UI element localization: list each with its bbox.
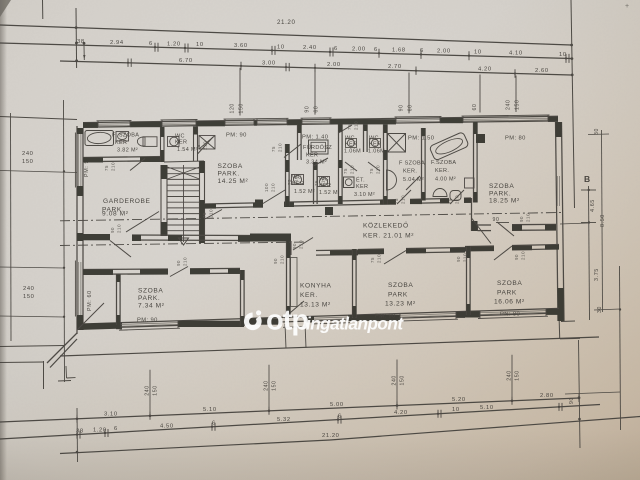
- svg-text:SZOBA: SZOBA: [497, 280, 522, 287]
- svg-text:10: 10: [474, 50, 482, 56]
- svg-text:otp: otp: [266, 305, 308, 337]
- svg-text:3.75: 3.75: [594, 268, 600, 281]
- svg-text:KER: KER: [175, 140, 187, 146]
- svg-text:90: 90: [273, 258, 278, 264]
- svg-text:KER: KER: [369, 142, 381, 148]
- svg-text:75: 75: [369, 168, 374, 174]
- svg-text:2.40: 2.40: [303, 45, 317, 51]
- svg-text:210: 210: [271, 183, 276, 192]
- svg-text:4.50: 4.50: [160, 424, 174, 430]
- svg-text:100: 100: [264, 183, 269, 192]
- svg-text:2.60: 2.60: [535, 68, 549, 74]
- svg-text:ÉT.: ÉT.: [356, 177, 365, 184]
- svg-text:PARK.: PARK.: [218, 171, 240, 178]
- svg-text:4.20: 4.20: [394, 410, 408, 416]
- svg-text:6: 6: [114, 426, 118, 432]
- svg-text:5.32: 5.32: [277, 417, 291, 423]
- svg-text:210: 210: [354, 121, 359, 130]
- svg-text:210: 210: [280, 255, 285, 264]
- svg-text:WC: WC: [292, 175, 302, 181]
- svg-text:21.20: 21.20: [322, 433, 340, 439]
- svg-text:PM: 90: PM: 90: [137, 318, 158, 324]
- svg-text:75: 75: [394, 198, 399, 204]
- svg-text:1.06M: 1.06M: [344, 149, 361, 155]
- svg-text:75: 75: [104, 165, 109, 171]
- svg-text:PM: 90: PM: 90: [226, 133, 247, 139]
- svg-text:10: 10: [452, 407, 460, 413]
- svg-text:2.94: 2.94: [110, 40, 124, 46]
- svg-text:6: 6: [374, 47, 378, 53]
- svg-text:KER.: KER.: [403, 169, 417, 175]
- svg-text:KER: KER: [356, 184, 368, 190]
- svg-text:210: 210: [377, 254, 382, 263]
- svg-text:PARK: PARK: [388, 292, 408, 299]
- svg-text:210: 210: [203, 141, 208, 150]
- svg-text:PM: 60: PM: 60: [87, 290, 93, 311]
- svg-text:150: 150: [153, 385, 159, 395]
- svg-text:5.04 M²: 5.04 M²: [403, 177, 424, 183]
- svg-text:210: 210: [526, 213, 531, 222]
- svg-text:75: 75: [202, 212, 207, 218]
- svg-text:B: B: [584, 174, 591, 184]
- svg-text:PARK.: PARK.: [138, 295, 160, 302]
- svg-text:3.10 M²: 3.10 M²: [354, 192, 375, 198]
- svg-text:1.06M: 1.06M: [368, 149, 385, 155]
- svg-text:21.20: 21.20: [277, 19, 295, 26]
- svg-text:60: 60: [408, 104, 414, 111]
- svg-text:1.54 M²: 1.54 M²: [177, 147, 198, 153]
- svg-text:KER.: KER.: [300, 292, 318, 299]
- svg-text:150: 150: [515, 370, 521, 380]
- svg-text:90: 90: [176, 260, 181, 266]
- svg-text:210: 210: [209, 209, 214, 218]
- svg-text:5.20: 5.20: [452, 397, 466, 403]
- svg-text:1.20: 1.20: [167, 41, 181, 47]
- svg-text:210: 210: [299, 240, 304, 249]
- svg-text:90: 90: [456, 256, 461, 262]
- svg-text:2.00: 2.00: [327, 62, 341, 68]
- svg-text:1.68: 1.68: [392, 47, 406, 53]
- svg-text:90: 90: [292, 243, 297, 249]
- svg-text:GARDEROBE: GARDEROBE: [103, 198, 151, 205]
- svg-text:240: 240: [263, 380, 269, 390]
- svg-text:KER: KER: [319, 183, 331, 189]
- svg-text:6.70: 6.70: [179, 58, 193, 64]
- svg-text:5.10: 5.10: [203, 407, 217, 413]
- svg-text:75: 75: [448, 198, 453, 204]
- svg-text:3.10: 3.10: [104, 411, 118, 417]
- svg-text:210: 210: [455, 195, 460, 204]
- svg-text:8.50: 8.50: [600, 214, 606, 227]
- svg-text:KER: KER: [306, 153, 318, 159]
- svg-text:SZOBA: SZOBA: [489, 183, 514, 190]
- svg-text:F.SZOBA: F.SZOBA: [431, 160, 456, 166]
- svg-text:240: 240: [507, 370, 513, 380]
- svg-text:3.82 M²: 3.82 M²: [117, 148, 138, 154]
- svg-text:210: 210: [463, 253, 468, 262]
- svg-text:KER: KER: [115, 140, 127, 146]
- svg-text:PM: 1.50: PM: 1.50: [408, 136, 434, 142]
- svg-text:75: 75: [343, 168, 348, 174]
- svg-text:SZOBA: SZOBA: [388, 282, 413, 289]
- svg-text:13.23 M²: 13.23 M²: [385, 301, 416, 308]
- svg-text:5.00: 5.00: [330, 402, 344, 408]
- svg-text:F SZOBA: F SZOBA: [399, 161, 425, 167]
- svg-text:18.25 M²: 18.25 M²: [489, 198, 520, 205]
- svg-text:PN: 80: PN: 80: [500, 312, 520, 318]
- svg-text:150: 150: [238, 103, 244, 113]
- svg-text:9.08 M²: 9.08 M²: [102, 211, 129, 218]
- svg-text:4.65: 4.65: [590, 199, 596, 212]
- svg-text:16.06 M²: 16.06 M²: [494, 299, 525, 306]
- svg-text:75: 75: [271, 146, 276, 152]
- svg-text:75: 75: [347, 124, 352, 130]
- svg-text:90: 90: [110, 227, 115, 233]
- svg-text:4.10: 4.10: [509, 51, 523, 57]
- svg-text:210: 210: [376, 165, 381, 174]
- svg-text:7.34 M²: 7.34 M²: [138, 303, 165, 310]
- svg-text:1.52 M: 1.52 M: [319, 190, 338, 196]
- svg-text:KER. 21.01 M²: KER. 21.01 M²: [363, 233, 414, 240]
- svg-text:10: 10: [196, 42, 204, 48]
- svg-text:KÖZLEKEDŐ: KÖZLEKEDŐ: [363, 221, 409, 230]
- svg-text:38: 38: [77, 39, 85, 45]
- svg-text:3.34 M²: 3.34 M²: [306, 160, 327, 166]
- svg-text:PARK.: PARK.: [489, 191, 511, 198]
- svg-text:10: 10: [559, 52, 567, 58]
- svg-text:F. SZOBA: F. SZOBA: [112, 133, 139, 139]
- svg-text:90: 90: [305, 106, 311, 113]
- svg-text:150: 150: [271, 380, 277, 390]
- svg-text:4.20: 4.20: [478, 66, 492, 72]
- svg-text:120: 120: [229, 103, 235, 113]
- svg-text:210: 210: [278, 143, 283, 152]
- svg-text:SZOBA: SZOBA: [218, 163, 243, 170]
- svg-text:+: +: [625, 3, 630, 10]
- svg-text:KONYHA: KONYHA: [300, 283, 331, 290]
- svg-text:2.00: 2.00: [437, 49, 451, 55]
- svg-text:6: 6: [334, 46, 338, 52]
- svg-text:210: 210: [117, 224, 122, 233]
- svg-text:240: 240: [22, 151, 33, 157]
- svg-text:5.10: 5.10: [480, 405, 494, 411]
- svg-text:FÜRDŐSZ: FÜRDŐSZ: [303, 144, 332, 151]
- svg-text:3.00: 3.00: [262, 60, 276, 66]
- svg-text:2.00: 2.00: [352, 46, 366, 52]
- svg-text:ingatlanpont: ingatlanpont: [306, 314, 404, 334]
- svg-text:75: 75: [370, 257, 375, 263]
- svg-text:10: 10: [277, 44, 285, 50]
- svg-text:2.80: 2.80: [540, 393, 554, 399]
- svg-text:PM: 80: PM: 80: [505, 136, 526, 142]
- svg-text:3.60: 3.60: [234, 43, 248, 49]
- svg-text:150: 150: [22, 159, 33, 165]
- svg-text:WC: WC: [319, 177, 329, 183]
- svg-text:SZOBA: SZOBA: [138, 288, 163, 295]
- svg-text:6: 6: [420, 48, 424, 54]
- svg-text:210: 210: [521, 251, 526, 260]
- svg-text:150: 150: [23, 294, 34, 300]
- svg-text:240: 240: [145, 385, 151, 395]
- svg-text:14.25 M²: 14.25 M²: [218, 178, 249, 185]
- svg-text:240: 240: [391, 375, 397, 385]
- svg-text:90: 90: [399, 104, 405, 111]
- svg-text:210: 210: [183, 257, 188, 266]
- svg-text:PM: 1.40: PM: 1.40: [302, 135, 328, 141]
- svg-text:210: 210: [401, 195, 406, 204]
- svg-text:2.70: 2.70: [388, 64, 402, 70]
- svg-text:210: 210: [111, 162, 116, 171]
- svg-text:240: 240: [505, 100, 511, 110]
- svg-text:6: 6: [149, 41, 153, 47]
- svg-text:KER: KER: [345, 142, 357, 148]
- svg-text:4.00 M²: 4.00 M²: [435, 177, 456, 183]
- svg-text:150: 150: [514, 100, 520, 110]
- svg-text:240: 240: [23, 286, 34, 292]
- svg-text:60: 60: [314, 106, 320, 113]
- svg-text:PARK: PARK: [497, 290, 517, 297]
- svg-text:210: 210: [350, 165, 355, 174]
- svg-text:KER.: KER.: [435, 168, 449, 174]
- svg-text:1.52 M²: 1.52 M²: [294, 189, 315, 195]
- svg-text:60: 60: [472, 103, 478, 110]
- svg-text:150: 150: [399, 375, 405, 385]
- svg-text:KER: KER: [292, 181, 304, 187]
- svg-text:90: 90: [514, 254, 519, 260]
- svg-text:90: 90: [519, 216, 524, 222]
